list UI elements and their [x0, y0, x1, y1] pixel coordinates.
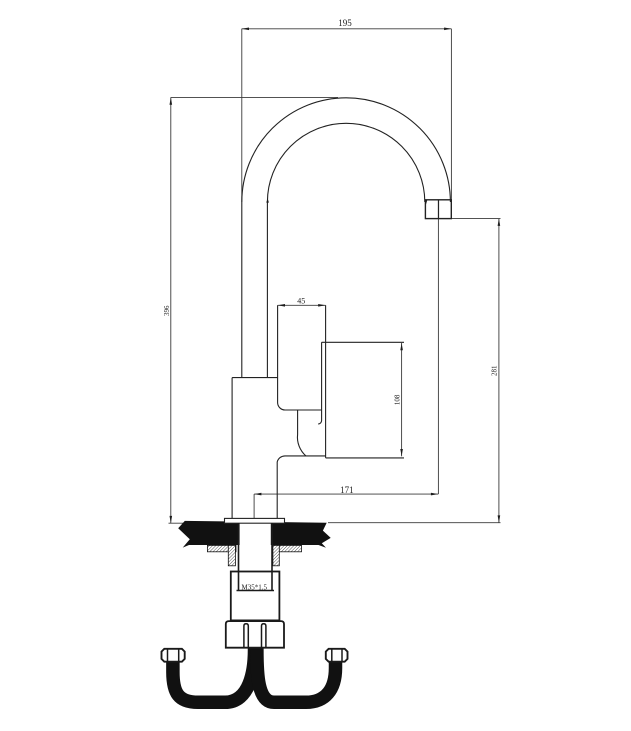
svg-text:108: 108 — [394, 394, 402, 405]
svg-text:281: 281 — [490, 365, 498, 376]
svg-text:M35*1.5: M35*1.5 — [242, 583, 268, 591]
svg-text:195: 195 — [338, 18, 352, 28]
svg-text:396: 396 — [163, 305, 171, 316]
svg-text:45: 45 — [297, 297, 305, 306]
svg-text:171: 171 — [340, 485, 354, 495]
